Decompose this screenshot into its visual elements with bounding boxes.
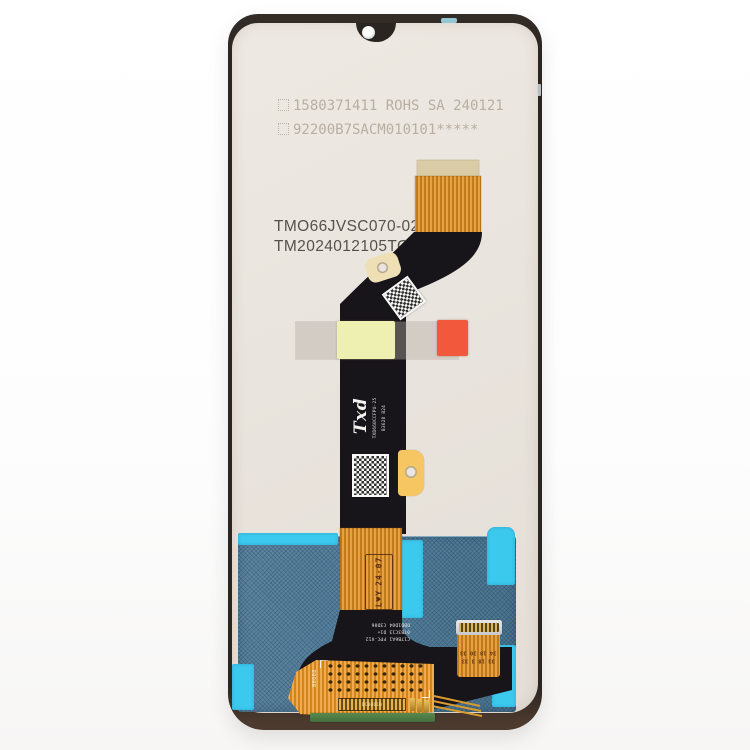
gold-chip-icon: [424, 700, 429, 713]
photo-canvas: 1580371411 ROHS SA 240121 92200B7SACM010…: [0, 0, 750, 750]
board-connector: [456, 620, 502, 635]
gold-contact-strip: DC80610: [338, 698, 406, 711]
connector-pins-icon: [459, 623, 499, 632]
gold-connector-marking: DC80610: [362, 702, 382, 707]
board-stamp: B0608: [309, 661, 321, 695]
pcb-strip: [310, 713, 435, 722]
screw-hole-icon: [405, 466, 417, 478]
flex-marking-line3: DBD1D04 C3D06: [352, 620, 410, 627]
flex-marking-line2: 07B3C13 D1+: [352, 627, 410, 634]
fiducial-bracket-icon: [320, 660, 328, 668]
flex-stiffener: [417, 160, 479, 177]
gold-chip-icon: [417, 699, 422, 712]
screw-tab-right: [398, 450, 424, 496]
connector-marking-line2: 34 18 30 33: [460, 648, 496, 656]
gold-chip-icon: [410, 698, 415, 711]
red-sticker: [437, 320, 468, 356]
lcd-assembly: 1580371411 ROHS SA 240121 92200B7SACM010…: [228, 14, 542, 730]
connector-flex: 33 18 3 33 34 18 30 33: [457, 635, 500, 677]
date-stamp-box: L♥Y 24·07: [365, 554, 393, 610]
qr-label-icon: [352, 454, 389, 497]
connector-marking-line1: 33 18 3 33: [460, 656, 496, 664]
flex-brand-batch: B3628 B24: [379, 388, 389, 448]
date-stamp-line2: 24·07: [374, 557, 384, 586]
yellow-sticker: [337, 321, 395, 359]
component-pads: [326, 662, 426, 696]
flex-bottom-markings: C17B6A1 FPC-V12 07B3C13 D1+ DBD1D04 C3D0…: [352, 620, 410, 641]
flex-orange-top: [415, 176, 481, 233]
gold-trace: [432, 706, 482, 716]
fiducial-bracket-icon: [422, 690, 430, 698]
screw-hole-icon: [376, 261, 390, 275]
flex-marking-line1: C17B6A1 FPC-V12: [352, 634, 410, 641]
date-stamp-line1: L♥Y: [374, 590, 384, 607]
